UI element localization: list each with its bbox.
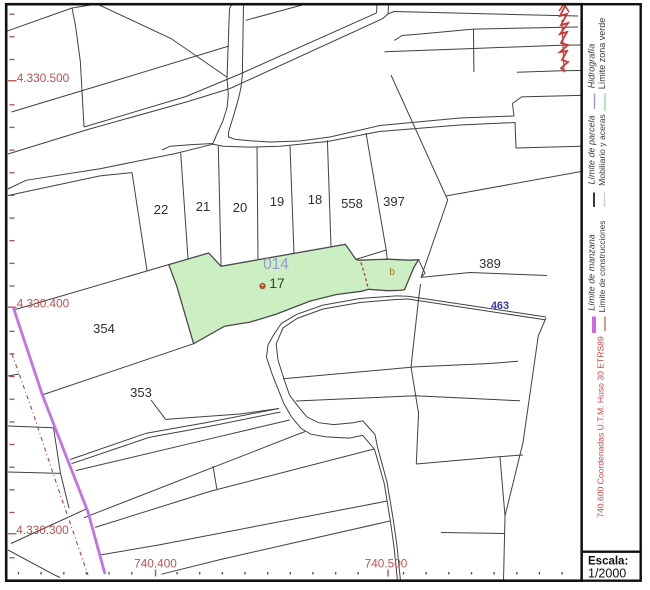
- svg-text:397: 397: [383, 194, 405, 209]
- svg-text:b: b: [389, 267, 395, 278]
- svg-text:21: 21: [196, 199, 210, 214]
- svg-text:4.330.400: 4.330.400: [17, 297, 70, 311]
- svg-text:Límite de parcela: Límite de parcela: [587, 115, 597, 184]
- svg-text:Límite de manzana: Límite de manzana: [587, 234, 597, 311]
- svg-text:18: 18: [308, 192, 322, 207]
- svg-text:Límite zona verde: Límite zona verde: [597, 18, 607, 90]
- svg-text:17: 17: [269, 275, 285, 291]
- svg-text:20: 20: [233, 200, 247, 215]
- svg-text:Hidrografía: Hidrografía: [587, 44, 597, 89]
- svg-text:740.500: 740.500: [365, 557, 408, 571]
- svg-text:Límite de construcciones: Límite de construcciones: [597, 221, 607, 313]
- svg-text:389: 389: [479, 256, 501, 271]
- svg-text:Mobiliario y aceras: Mobiliario y aceras: [597, 114, 607, 186]
- svg-text:014: 014: [263, 256, 289, 273]
- svg-text:558: 558: [341, 196, 363, 211]
- svg-text:463: 463: [491, 300, 509, 312]
- svg-text:19: 19: [270, 194, 284, 209]
- svg-text:4.330.500: 4.330.500: [17, 71, 70, 85]
- svg-text:4.330.300: 4.330.300: [16, 523, 69, 537]
- svg-text:1/2000: 1/2000: [588, 567, 626, 581]
- svg-text:22: 22: [154, 202, 168, 217]
- svg-text:740.400: 740.400: [134, 557, 177, 571]
- svg-text:740.600 Coordenadas U.T.M. Hus: 740.600 Coordenadas U.T.M. Huso 30 ETRS8…: [596, 336, 606, 518]
- svg-text:354: 354: [93, 321, 115, 336]
- svg-text:353: 353: [130, 385, 152, 400]
